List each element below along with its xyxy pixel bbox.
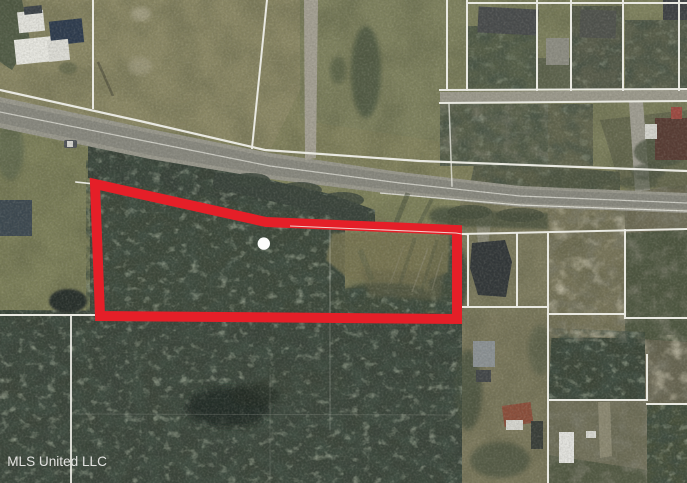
svg-text:MLS United LLC: MLS United LLC bbox=[7, 454, 107, 469]
